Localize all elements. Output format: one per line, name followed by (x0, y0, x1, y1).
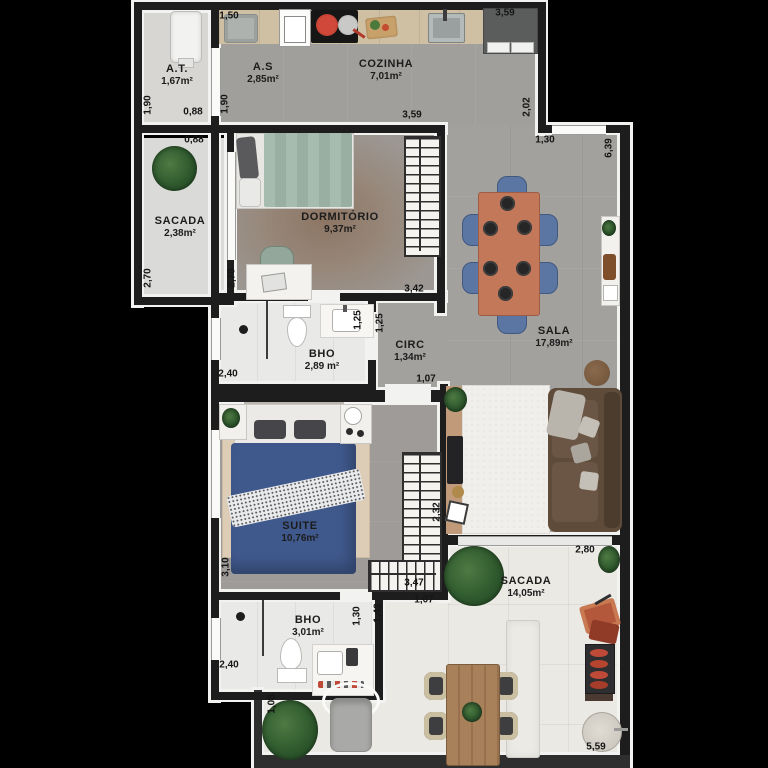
faucet (443, 9, 447, 21)
suite-closet-horizontal-rail (370, 573, 436, 575)
plant-entry (444, 387, 467, 412)
toilet-tank-bho2 (277, 668, 307, 683)
dim-3-10: 3,10 (221, 557, 232, 576)
nightstand-item-2 (357, 430, 364, 437)
shower-drain-bho1 (239, 325, 248, 334)
label-bho1: BHO2,89 m² (305, 348, 339, 372)
dim-1-50: 1,50 (219, 11, 238, 22)
sideboard-box (603, 285, 618, 301)
parapet-bottom (254, 755, 630, 768)
dim-1-90-a: 1,90 (143, 95, 154, 114)
label-cozinha: COZINHA7,01m² (359, 58, 413, 82)
dorm-pillow-white (239, 178, 261, 207)
dim-2-40-b: 2,40 (219, 660, 238, 671)
side-table-gold (452, 486, 464, 498)
label-suite: SUITE10,76m² (281, 520, 318, 544)
sideboard-plant (602, 220, 616, 236)
dispenser-bho2 (346, 648, 358, 666)
dim-1-08: 1,08 (267, 694, 278, 713)
plant-sacada-top (444, 546, 504, 606)
grill-shelf (585, 694, 613, 701)
dim-1-30-b: 1,30 (352, 606, 363, 625)
sofa-cushion-2 (552, 462, 598, 522)
hanging-chair-seat (330, 698, 372, 752)
shower-glass-bho2 (262, 600, 264, 656)
label-dormitorio: DORMITÓRIO9,37m² (301, 211, 379, 235)
dim-1-07-a: 1,07 (416, 374, 435, 385)
dorm-laptop (261, 272, 287, 292)
window-bho2 (211, 618, 221, 660)
outdoor-centerpiece (462, 702, 482, 722)
grill-skewer-4 (590, 681, 608, 689)
sala-rug (462, 385, 550, 534)
dim-3-42: 3,42 (404, 284, 423, 295)
fridge-drawer-2 (511, 42, 534, 53)
tv-console (447, 436, 463, 484)
dim-2-02: 2,02 (522, 97, 533, 116)
label-bho2: BHO3,01m² (292, 614, 324, 638)
nightstand-item-1 (346, 428, 353, 435)
plate-6 (498, 286, 513, 301)
nightstand-tray (344, 407, 362, 425)
dim-2-70-b: 2,70 (227, 268, 238, 287)
dim-2-80: 2,80 (575, 545, 594, 556)
label-as: A.S2,85m² (247, 61, 279, 85)
shower-drain-bho2 (236, 612, 245, 621)
plant-sacada-left (152, 146, 197, 191)
grill-skewer-3 (590, 671, 608, 679)
dorm-duvet (264, 133, 352, 207)
dim-5-59: 5,59 (586, 742, 605, 753)
plant-sacada-small (598, 546, 620, 573)
door-dormitorio (308, 293, 340, 301)
water-tank (170, 11, 202, 63)
dim-1-25-b: 1,25 (375, 313, 386, 332)
door-bho2 (340, 592, 372, 600)
dim-3-59-dorm: 3,59 (402, 110, 421, 121)
plate-4 (483, 261, 498, 276)
label-circ: CIRC1,34m² (394, 339, 426, 363)
pouf (584, 360, 610, 386)
suite-pillow-1 (254, 420, 286, 439)
sofa-pillow-3 (579, 471, 599, 491)
vegetables (370, 20, 380, 30)
label-at: A.T.1,67m² (161, 63, 193, 87)
door-suite (385, 384, 431, 402)
dim-1-42: 1,42 (373, 603, 384, 622)
plate-2 (483, 221, 498, 236)
nightstand-left-plant (222, 408, 240, 428)
dim-0-88-a: 0,88 (183, 107, 202, 118)
plate-1 (500, 196, 515, 211)
fridge-drawer-1 (487, 42, 510, 53)
round-table-handle (614, 728, 628, 731)
window-step (552, 125, 606, 135)
sideboard-tray (603, 254, 616, 280)
wall-kitchen-right (538, 2, 546, 133)
tomato (382, 24, 389, 31)
dim-2-40-a: 2,40 (218, 369, 237, 380)
window-suite (211, 430, 221, 518)
dim-1-30-top: 1,30 (535, 135, 554, 146)
dim-1-25-a: 1,25 (353, 310, 364, 329)
dorm-wardrobe-rail (419, 138, 421, 251)
window-bho1 (211, 318, 221, 360)
sink-bho2 (317, 651, 343, 675)
grill-skewer-2 (590, 660, 608, 668)
wall-left-upper (134, 2, 142, 305)
plate-3 (517, 220, 532, 235)
dim-3-59-top: 3,59 (495, 8, 514, 19)
label-sala: SALA17,89m² (535, 325, 572, 349)
suite-closet-vertical-rail (419, 454, 421, 562)
washing-machine-door (284, 16, 306, 43)
wall-bho1-suite (211, 384, 375, 402)
dim-1-90-b: 1,90 (220, 94, 231, 113)
outdoor-chair-2 (424, 712, 448, 740)
wall-left-mid (211, 125, 219, 700)
wall-y125 (134, 125, 445, 133)
art-frame (445, 500, 469, 525)
grill-skewer-1 (590, 649, 608, 657)
label-sacada-bottom: SACADA14,05m² (501, 575, 552, 599)
dim-6-39: 6,39 (604, 138, 615, 157)
plate-5 (516, 261, 531, 276)
dim-3-47: 3,47 (404, 578, 423, 589)
pan-red (316, 14, 338, 36)
dim-0-88-b: 0,88 (184, 135, 203, 146)
shower-glass-bho1 (266, 301, 268, 359)
dim-2-32: 2,32 (432, 502, 443, 521)
outdoor-chair-1 (424, 672, 448, 700)
faucet-bho1 (343, 305, 347, 312)
wall-suite-bottom (211, 592, 448, 600)
suite-pillow-2 (294, 420, 326, 439)
toilet-bowl-bho2 (280, 638, 302, 670)
window-sacada-dorm (227, 152, 236, 260)
label-sacada-left: SACADA2,38m² (155, 215, 206, 239)
floor-plan: A.T.1,67m² A.S2,85m² COZINHA7,01m² SACAD… (0, 0, 768, 768)
dorm-wardrobe (404, 136, 441, 257)
dim-1-07-b: 1,07 (414, 595, 433, 606)
sofa-back (604, 392, 620, 528)
dim-2-70-a: 2,70 (143, 268, 154, 287)
